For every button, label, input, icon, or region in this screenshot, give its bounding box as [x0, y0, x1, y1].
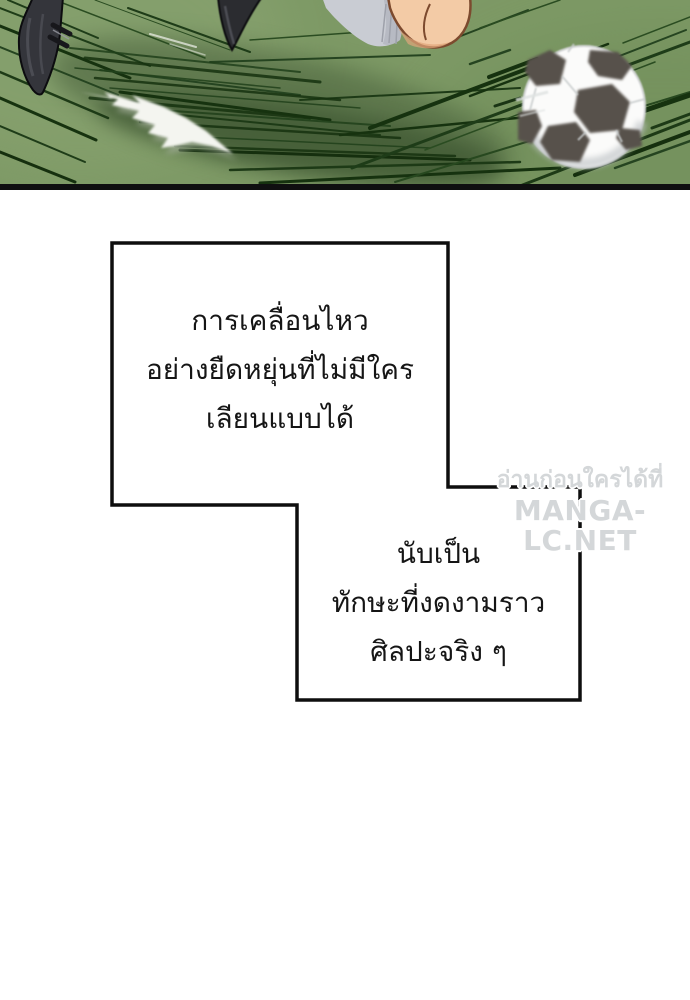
caption-box-1: การเคลื่อนไหว อย่างยืดหยุ่นที่ไม่มีใคร เ… [114, 243, 446, 495]
field-bottom-border [0, 184, 690, 190]
manga-page: การเคลื่อนไหว อย่างยืดหยุ่นที่ไม่มีใคร เ… [0, 0, 690, 1000]
watermark-tagline: อ่านก่อนใครได้ที่ [468, 464, 690, 496]
watermark-site-name: MANGA-LC.NET [468, 496, 690, 556]
caption-line: อย่างยืดหยุ่นที่ไม่มีใคร [146, 345, 414, 394]
caption-line: เลียนแบบได้ [206, 394, 354, 443]
caption-line: ศิลปะจริง ๆ [370, 627, 507, 676]
caption-line: การเคลื่อนไหว [191, 296, 368, 345]
site-watermark: อ่านก่อนใครได้ที่ MANGA-LC.NET [468, 464, 690, 556]
field-scene [0, 0, 690, 190]
caption-line: ทักษะที่งดงามราว [332, 578, 546, 627]
